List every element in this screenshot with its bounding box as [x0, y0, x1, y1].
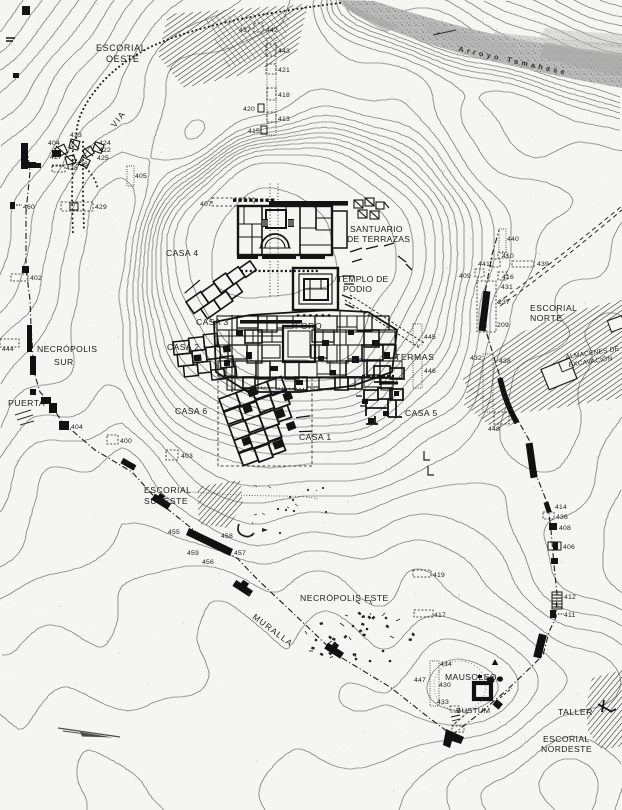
svg-text:419: 419 [433, 572, 445, 579]
svg-text:TERMAS: TERMAS [395, 352, 434, 362]
svg-text:NORTE: NORTE [530, 313, 562, 323]
svg-text:404: 404 [71, 424, 83, 431]
svg-text:CASA 6: CASA 6 [175, 406, 208, 416]
svg-text:CASA 4: CASA 4 [166, 248, 199, 258]
svg-text:445: 445 [424, 334, 436, 341]
svg-text:422: 422 [99, 147, 111, 154]
svg-text:441: 441 [478, 261, 490, 268]
svg-text:427: 427 [50, 154, 62, 161]
svg-text:409: 409 [459, 273, 471, 280]
svg-text:410: 410 [502, 253, 514, 260]
svg-text:408: 408 [559, 525, 571, 532]
svg-text:424: 424 [99, 140, 111, 147]
svg-text:NECRÓPOLIS: NECRÓPOLIS [37, 344, 97, 354]
svg-text:432: 432 [470, 355, 482, 362]
svg-text:209: 209 [497, 322, 509, 329]
svg-text:407: 407 [200, 201, 212, 208]
svg-text:PODIO: PODIO [343, 284, 372, 294]
svg-text:430: 430 [439, 682, 451, 689]
svg-text:NECRÓPOLIS ESTE: NECRÓPOLIS ESTE [300, 593, 389, 603]
svg-text:423: 423 [70, 132, 82, 139]
svg-text:429: 429 [95, 204, 107, 211]
svg-text:413: 413 [278, 116, 290, 123]
svg-text:446: 446 [424, 368, 436, 375]
svg-text:443: 443 [278, 48, 290, 55]
svg-text:DE TERRAZAS: DE TERRAZAS [347, 234, 410, 244]
svg-text:447: 447 [414, 677, 426, 684]
svg-text:442: 442 [266, 27, 278, 34]
svg-text:CASA 5: CASA 5 [405, 408, 438, 418]
svg-text:412: 412 [564, 594, 576, 601]
svg-text:SURESTE: SURESTE [144, 496, 188, 506]
svg-text:417: 417 [434, 612, 446, 619]
svg-text:414: 414 [555, 504, 567, 511]
svg-text:420: 420 [243, 106, 255, 113]
svg-text:CASA 2: CASA 2 [167, 342, 200, 352]
svg-text:456: 456 [202, 559, 214, 566]
svg-text:460: 460 [23, 204, 35, 211]
svg-text:ESCORIAL: ESCORIAL [530, 303, 577, 313]
svg-text:448: 448 [488, 426, 500, 433]
svg-text:438: 438 [499, 358, 511, 365]
svg-text:436: 436 [556, 514, 568, 521]
svg-text:ESCORIAL: ESCORIAL [96, 43, 146, 53]
svg-text:MAUSOLEO: MAUSOLEO [445, 672, 497, 682]
svg-text:428: 428 [66, 165, 78, 172]
svg-text:TALLER: TALLER [558, 707, 593, 717]
svg-text:FORO: FORO [295, 321, 322, 331]
svg-text:459: 459 [187, 550, 199, 557]
svg-text:458: 458 [221, 533, 233, 540]
svg-text:NORDESTE: NORDESTE [541, 744, 592, 754]
svg-text:ESCORIAL: ESCORIAL [144, 485, 191, 495]
svg-text:402: 402 [30, 275, 42, 282]
svg-text:421: 421 [278, 67, 290, 74]
svg-text:404: 404 [48, 140, 60, 147]
svg-text:CASA 1: CASA 1 [299, 432, 332, 442]
svg-text:406: 406 [563, 544, 575, 551]
svg-text:405: 405 [135, 173, 147, 180]
svg-text:411: 411 [564, 612, 575, 619]
svg-text:403: 403 [181, 453, 193, 460]
svg-text:415: 415 [248, 128, 260, 135]
svg-text:237: 237 [498, 299, 510, 306]
svg-text:457: 457 [234, 550, 246, 557]
svg-text:BUSTUM: BUSTUM [456, 706, 490, 715]
svg-text:OESTE: OESTE [106, 54, 140, 64]
svg-text:416: 416 [502, 274, 514, 281]
svg-text:434: 434 [440, 661, 452, 668]
svg-text:418: 418 [278, 92, 290, 99]
svg-text:PUERTA: PUERTA [8, 398, 45, 408]
svg-text:440: 440 [507, 236, 519, 243]
svg-text:ESCORIAL: ESCORIAL [543, 734, 590, 744]
svg-text:425: 425 [97, 155, 109, 162]
svg-text:439: 439 [537, 261, 549, 268]
svg-text:433: 433 [437, 699, 449, 706]
svg-text:CASA 3: CASA 3 [196, 317, 229, 327]
svg-text:400: 400 [120, 438, 132, 445]
svg-text:431: 431 [501, 284, 513, 291]
svg-text:437: 437 [239, 27, 251, 34]
svg-text:455: 455 [168, 529, 180, 536]
svg-text:SANTUARIO: SANTUARIO [350, 224, 403, 234]
svg-text:SUR: SUR [54, 357, 74, 367]
svg-text:444: 444 [2, 346, 14, 353]
